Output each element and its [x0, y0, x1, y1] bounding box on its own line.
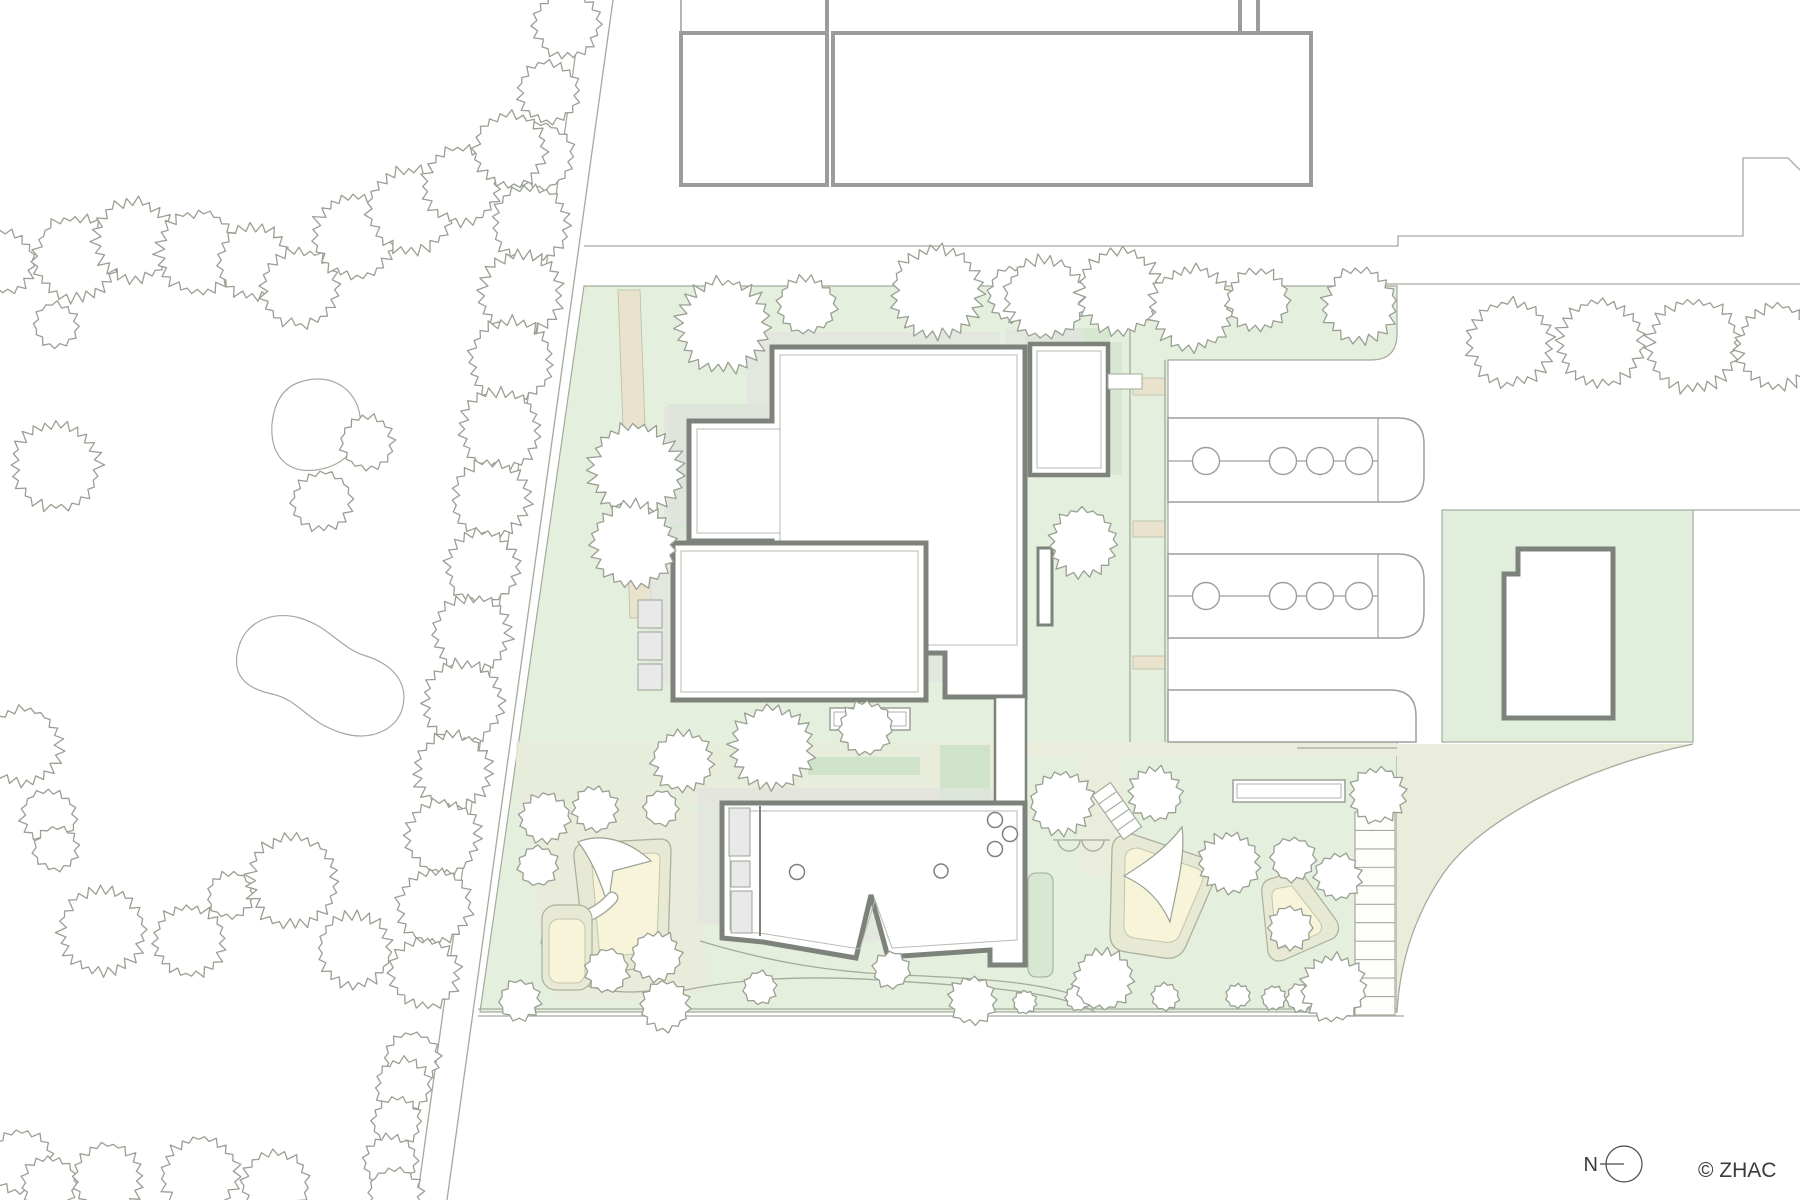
tree [11, 421, 105, 512]
tree [161, 1137, 241, 1200]
bench-east [1233, 780, 1345, 802]
wing-window-2 [731, 861, 750, 887]
parking-tree-circle [1307, 448, 1334, 475]
east-building [1504, 549, 1613, 718]
pavilion-east-terrace [1028, 873, 1053, 977]
north-arrow: N [1584, 1146, 1642, 1182]
southeast-wedge [1397, 744, 1693, 1012]
pavilion-column [1003, 827, 1018, 842]
neighbor-buildings [681, 0, 1311, 185]
parking-tree-circle [1346, 448, 1373, 475]
stair-block-1 [638, 600, 662, 628]
parking-tree-circle [1193, 448, 1220, 475]
strip-notch-3 [1133, 521, 1165, 537]
plan-annotations: N © ZHAC [1584, 1146, 1777, 1182]
parking-row [1168, 690, 1416, 742]
tree [55, 885, 147, 977]
site-plan-page: N © ZHAC [0, 0, 1800, 1200]
dark-sage-strip [808, 757, 920, 775]
landform-blob-lower [236, 616, 403, 736]
copyright-label: © ZHAC [1698, 1159, 1776, 1182]
wing-window-1 [729, 808, 750, 856]
tree [1644, 300, 1742, 395]
tree [1466, 296, 1556, 388]
pavilion-column [988, 842, 1003, 857]
sandpit-small-sand [549, 919, 585, 983]
parking-tree-circle [1193, 583, 1220, 610]
tree [395, 868, 474, 945]
tree [0, 705, 65, 788]
tree [1555, 298, 1645, 388]
tree [452, 460, 533, 539]
annex-east-notch [1108, 374, 1142, 389]
site-plan-canvas: N © ZHAC [0, 0, 1800, 1200]
tree [1733, 303, 1800, 392]
parking-tree-circle [1346, 583, 1373, 610]
tree [339, 414, 395, 471]
west-stair-blocks [638, 600, 662, 690]
tree [443, 527, 521, 605]
tree [72, 1142, 143, 1200]
hall-building [673, 543, 926, 700]
tree [531, 0, 602, 59]
pavilion-column [934, 864, 948, 878]
tree [290, 471, 354, 531]
north-label: N [1584, 1154, 1598, 1176]
tree [432, 594, 515, 672]
tree [244, 833, 339, 929]
walkway-connector [995, 697, 1026, 803]
stair-block-3 [638, 664, 662, 690]
tree [413, 730, 494, 812]
wing-window-3 [731, 891, 752, 933]
parking-tree-circle [1270, 448, 1297, 475]
annex-building [1030, 344, 1108, 475]
pavilion-wing-windows [729, 808, 752, 933]
strip-notch-4 [1133, 656, 1165, 669]
tree [493, 184, 572, 265]
parking-tree-circle [1270, 583, 1297, 610]
tree [421, 658, 506, 746]
pavilion-column [988, 813, 1003, 828]
tree [0, 229, 35, 294]
tree [517, 59, 580, 125]
tree [152, 905, 226, 977]
parking-tree-circle [1307, 583, 1334, 610]
annex-stub [1038, 548, 1052, 625]
tree [208, 871, 255, 919]
tree [33, 301, 79, 349]
pavilion-column [790, 865, 805, 880]
parking-area [1168, 418, 1424, 742]
tree [240, 1149, 310, 1200]
stair-block-2 [638, 632, 662, 660]
tree [319, 910, 393, 990]
neighbor-building-west [681, 33, 827, 185]
neighbor-building-east [833, 33, 1311, 185]
